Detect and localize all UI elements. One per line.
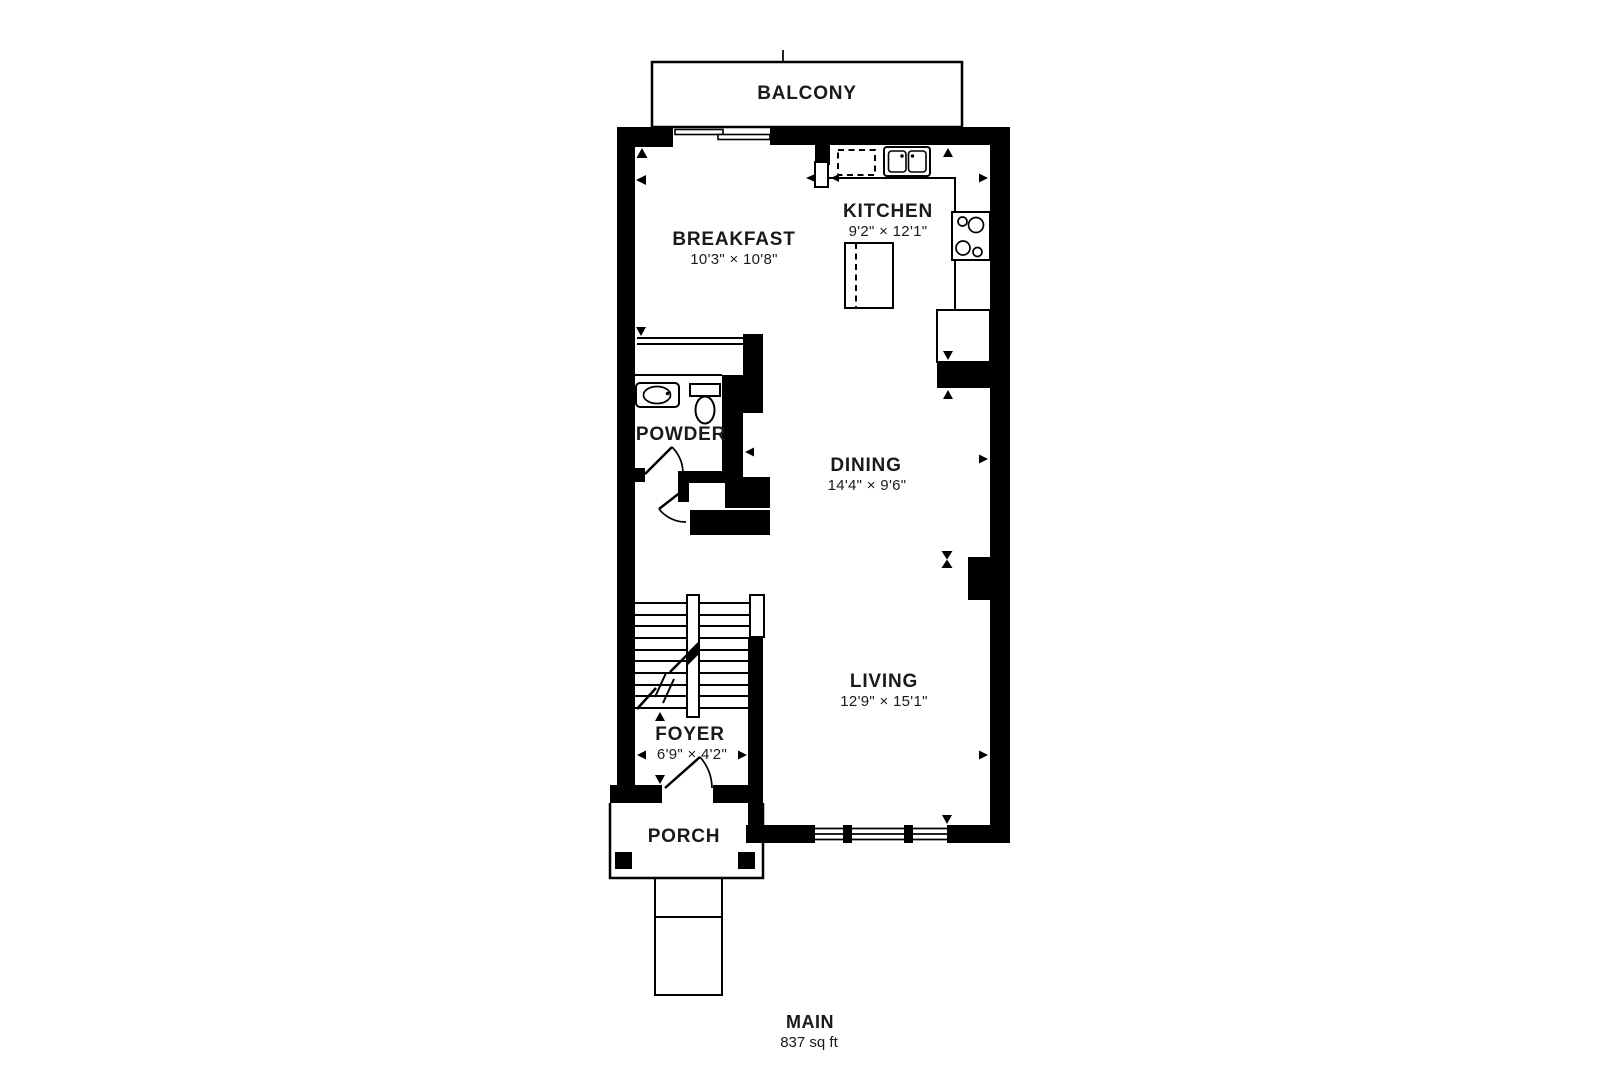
wall-segment xyxy=(968,557,990,600)
down-arrow-marker xyxy=(942,815,952,824)
right-arrow-marker xyxy=(738,751,747,760)
faucet-dot-icon xyxy=(666,392,670,396)
foyer: FOYER 6'9" × 4'2" xyxy=(655,724,727,788)
balcony: BALCONY xyxy=(652,50,962,127)
breakfast-dims: 10'3" × 10'8" xyxy=(690,251,777,268)
wall-segment xyxy=(748,637,763,843)
breakfast: BREAKFAST 10'3" × 10'8" xyxy=(672,229,795,268)
wall-segment xyxy=(743,334,763,380)
left-arrow-marker xyxy=(831,174,839,182)
plan-title: MAIN 837 sq ft xyxy=(780,1012,838,1051)
floorplan-drawing: BALCONY xyxy=(0,0,1620,1080)
stair-break-marks xyxy=(655,673,674,703)
breakfast-label: BREAKFAST xyxy=(672,229,795,250)
down-arrow-marker xyxy=(636,327,646,336)
wall-segment xyxy=(770,127,1010,145)
dishwasher-icon xyxy=(838,150,875,175)
interior-walls xyxy=(635,145,990,600)
faucet-dot-icon xyxy=(911,154,914,157)
dining: DINING 14'4" × 9'6" xyxy=(828,455,907,494)
wall-segment xyxy=(617,127,635,803)
bowtie-marker xyxy=(942,560,953,569)
kitchen-label: KITCHEN xyxy=(843,201,933,222)
living: LIVING 12'9" × 15'1" xyxy=(840,671,927,710)
kitchen-island-icon xyxy=(845,243,893,308)
toilet-tank-icon xyxy=(690,384,720,396)
staircase-up-icon xyxy=(635,595,764,717)
porch-label: PORCH xyxy=(648,826,721,847)
left-arrow-marker xyxy=(636,175,646,185)
wall-segment xyxy=(610,785,662,803)
toilet-bowl-icon xyxy=(696,397,715,424)
wall-segment xyxy=(990,127,1010,843)
counter-end-column xyxy=(815,162,828,187)
up-arrow-marker xyxy=(655,712,665,721)
sink-basin-right xyxy=(909,151,927,172)
porch-pillar-icon xyxy=(738,852,755,869)
powder-label: POWDER xyxy=(636,424,726,445)
front-walkway-icon xyxy=(655,878,722,995)
down-arrow-marker xyxy=(655,775,665,784)
window-mullion xyxy=(904,825,913,843)
stair-treads-right xyxy=(699,603,750,708)
powder-door-arc xyxy=(672,447,683,474)
foyer-dims: 6'9" × 4'2" xyxy=(657,746,727,763)
porch-pillar-icon xyxy=(615,852,632,869)
closet xyxy=(635,338,743,375)
faucet-dot-icon xyxy=(900,154,903,157)
living-dims: 12'9" × 15'1" xyxy=(840,693,927,710)
floorplan-page: BALCONY xyxy=(0,0,1620,1080)
closet-window-lines xyxy=(637,338,743,344)
window-mullion xyxy=(843,825,852,843)
left-arrow-marker xyxy=(745,448,754,457)
floor-area: 837 sq ft xyxy=(780,1034,838,1051)
floor-name: MAIN xyxy=(786,1012,834,1032)
up-arrow-marker xyxy=(943,390,953,399)
left-arrow-marker xyxy=(806,174,815,182)
sliding-door-panel xyxy=(718,135,770,140)
foyer-label: FOYER xyxy=(655,724,724,745)
kitchen: KITCHEN 9'2" × 12'1" xyxy=(815,147,990,362)
closet-door-arc xyxy=(659,509,686,522)
walkway-outline xyxy=(655,878,722,995)
dining-dims: 14'4" × 9'6" xyxy=(828,477,907,494)
up-arrow-marker xyxy=(637,148,648,158)
powder-door-leaf xyxy=(645,447,672,474)
wall-segment xyxy=(690,510,770,535)
porch: PORCH xyxy=(610,803,763,878)
balcony-sliding-door-icon xyxy=(675,130,770,140)
wall-segment xyxy=(947,825,1010,843)
up-arrow-marker xyxy=(943,148,953,157)
left-arrow-marker xyxy=(637,751,646,760)
wall-segment xyxy=(743,380,763,413)
right-arrow-marker xyxy=(979,174,988,183)
living-label: LIVING xyxy=(850,671,918,692)
dining-label: DINING xyxy=(830,455,901,476)
right-arrow-marker xyxy=(979,455,988,464)
powder-room: POWDER xyxy=(636,383,726,474)
balcony-label: BALCONY xyxy=(757,83,857,104)
stair-right-rail xyxy=(750,595,764,637)
stair-treads-left xyxy=(635,603,687,708)
wall-segment xyxy=(635,468,645,482)
window-glass-lines xyxy=(815,829,947,840)
bowtie-marker xyxy=(942,551,953,560)
living-window-icon xyxy=(815,825,947,843)
wall-segment xyxy=(678,471,689,502)
wall-segment xyxy=(937,362,990,388)
right-arrow-marker xyxy=(979,751,988,760)
sliding-door-panel xyxy=(675,130,723,135)
kitchen-dims: 9'2" × 12'1" xyxy=(849,223,928,240)
sink-basin-left xyxy=(889,151,907,172)
wall-segment xyxy=(725,477,770,508)
